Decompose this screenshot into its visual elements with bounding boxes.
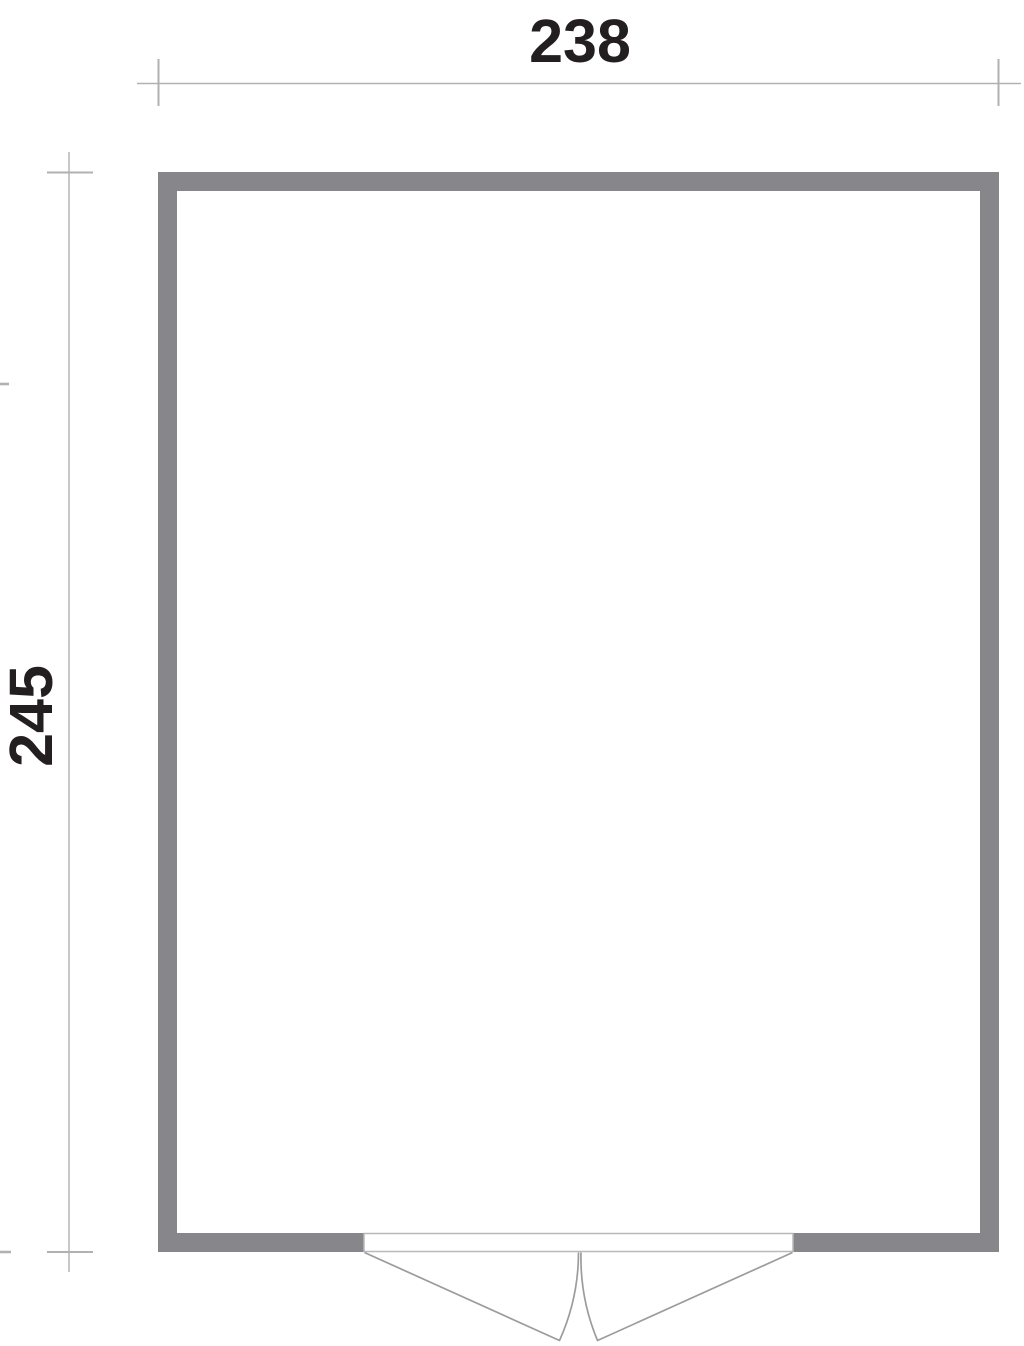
width-dimension-label: 238: [529, 7, 631, 75]
height-dimension-label: 245: [0, 665, 65, 767]
walls: [158, 172, 999, 1252]
door-threshold: [364, 1234, 793, 1252]
height-dimension: 245: [0, 152, 93, 1272]
wall-bottom-left-segment: [158, 1233, 364, 1252]
wall-left: [158, 172, 177, 1252]
wall-top: [158, 172, 999, 191]
wall-right: [980, 172, 999, 1252]
double-door: [364, 1234, 793, 1341]
width-dimension: 238: [137, 7, 1021, 106]
door-leaf-right: [581, 1253, 793, 1341]
floor-plan-drawing: 238 245: [0, 0, 1024, 1346]
floor-plan-canvas: 238 245: [0, 0, 1024, 1346]
door-leaf-left: [365, 1253, 579, 1341]
wall-bottom-right-segment: [793, 1233, 999, 1252]
